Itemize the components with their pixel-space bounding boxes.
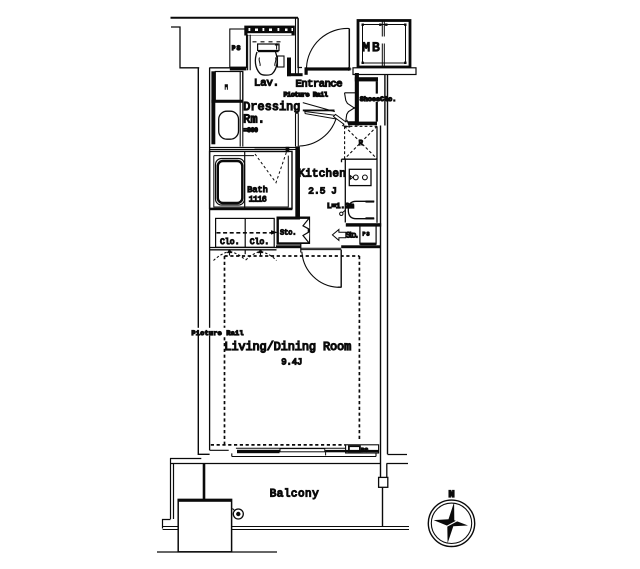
svg-text:Rm.: Rm. (243, 113, 264, 127)
svg-text:Clo.: Clo. (220, 238, 240, 247)
svg-text:2.5 J: 2.5 J (308, 186, 337, 197)
svg-text:MB: MB (362, 40, 380, 55)
svg-text:Bath: Bath (247, 185, 267, 195)
svg-text:ShoesClo.: ShoesClo. (360, 96, 397, 104)
svg-text:Lav.: Lav. (254, 77, 279, 89)
svg-text:N: N (448, 489, 454, 501)
svg-text:PS: PS (232, 45, 241, 52)
svg-text:PS: PS (363, 232, 370, 238)
svg-text:Picture Rail: Picture Rail (284, 92, 329, 100)
svg-text:PS: PS (361, 447, 369, 454)
svg-text:=800: =800 (244, 127, 259, 134)
svg-text:1116: 1116 (249, 195, 267, 204)
svg-text:Clo.: Clo. (250, 238, 270, 247)
svg-text:Sto.: Sto. (280, 230, 297, 238)
svg-text:Living/Dining Room: Living/Dining Room (224, 340, 351, 354)
svg-text:Kitchen: Kitchen (298, 169, 346, 181)
svg-text:9.4J: 9.4J (281, 358, 302, 368)
svg-text:L=1.2m: L=1.2m (327, 203, 354, 211)
svg-text:Entrance: Entrance (296, 79, 343, 91)
svg-text:Sto.: Sto. (346, 231, 360, 240)
svg-text:Picture Rail: Picture Rail (192, 330, 244, 338)
svg-text:Balcony: Balcony (270, 488, 319, 500)
